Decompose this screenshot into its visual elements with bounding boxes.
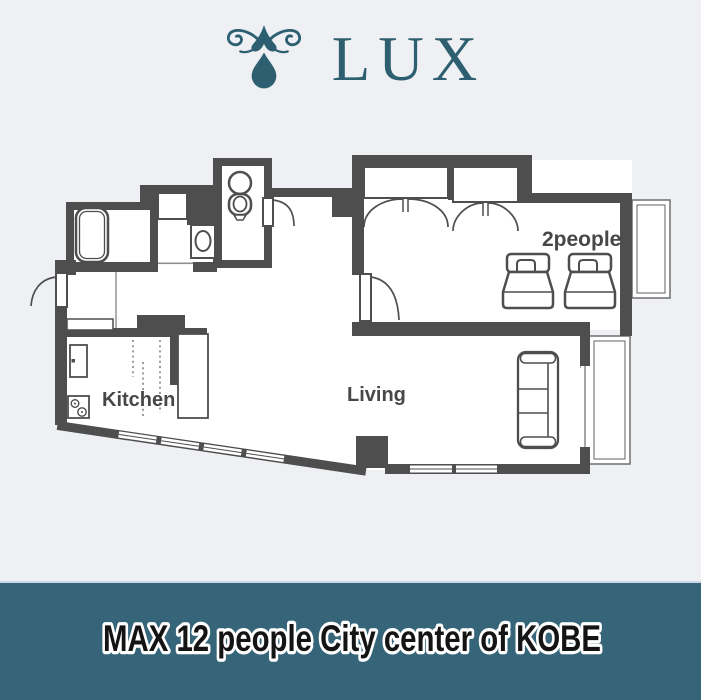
bedroom-capacity-label: 2people (542, 228, 621, 251)
floorplan-page: { "brand": { "name": "LUX", "ornament_ic… (0, 0, 701, 700)
banner-text: MAX 12 people City center of KOBE (103, 618, 601, 659)
kitchen-label: Kitchen (102, 389, 175, 411)
balcony-living (589, 336, 630, 464)
refrigerator-icon (70, 345, 87, 377)
washbasin-icon (191, 225, 215, 258)
entrance-door-icon (31, 273, 67, 307)
balcony-bedroom (632, 200, 670, 298)
sofa-icon (518, 352, 558, 448)
bed-icon (503, 254, 553, 308)
bathtub-icon (76, 208, 108, 262)
kitchen-counter (178, 334, 208, 418)
gas-stove-icon (68, 396, 89, 418)
info-banner: MAX 12 people City center of KOBE (0, 581, 701, 700)
shoe-cabinet (67, 319, 113, 330)
washing-machine-icon (158, 193, 187, 219)
washroom-door-threshold (158, 263, 193, 265)
living-label: Living (347, 384, 406, 406)
toilet-icon (229, 172, 251, 220)
bed-icon (565, 254, 615, 308)
